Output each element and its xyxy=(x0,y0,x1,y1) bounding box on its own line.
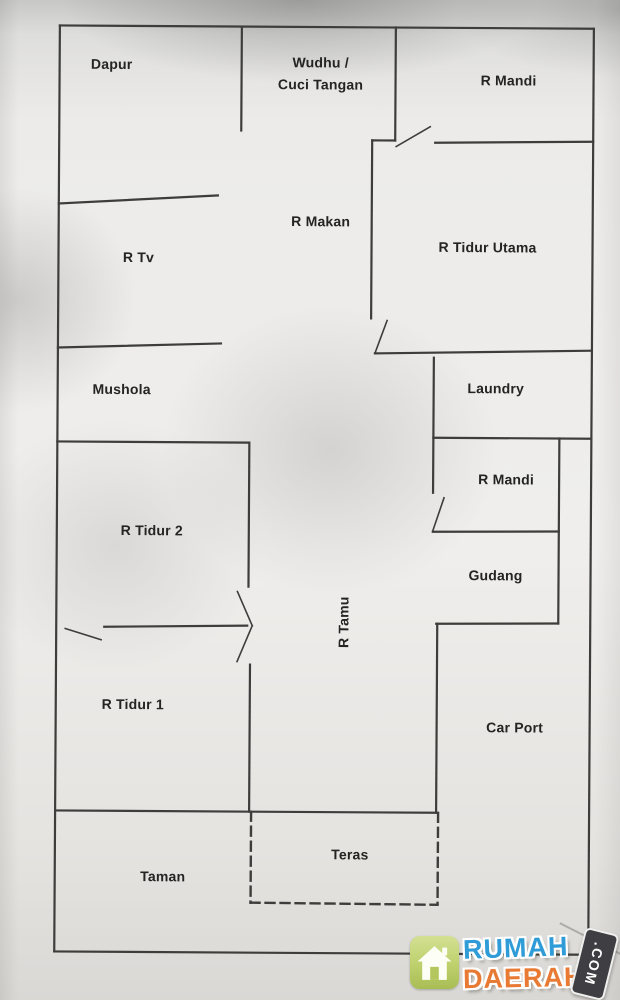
room-label-taman: Taman xyxy=(140,866,185,888)
room-label-gudang: Gudang xyxy=(468,565,522,587)
watermark-logo: RUMAH DAERAH .COM xyxy=(403,924,620,1000)
door-leaf xyxy=(375,320,387,353)
teras-dashed-wall xyxy=(251,903,438,905)
door-leaf xyxy=(237,592,252,626)
room-label-teras: Teras xyxy=(331,844,368,866)
door-leaf xyxy=(65,629,101,640)
watermark-word-daerah: DAERAH xyxy=(463,964,585,994)
teras-dashed-wall xyxy=(438,813,439,904)
door-leaf xyxy=(433,498,444,531)
room-label-dapur: Dapur xyxy=(91,54,133,76)
watermark-word-rumah: RUMAH xyxy=(463,933,569,964)
room-label-r-mandi-atas: R Mandi xyxy=(481,70,537,92)
wall xyxy=(435,141,593,144)
room-label-r-tamu: R Tamu xyxy=(333,596,355,648)
room-label-wudhu-cuci-tangan: Wudhu / Cuci Tangan xyxy=(278,52,363,96)
wall xyxy=(57,441,248,442)
floor-plan: DapurWudhu / Cuci TanganR MandiR MakanR … xyxy=(0,0,620,1000)
wall xyxy=(433,531,559,533)
wall xyxy=(433,438,591,439)
door-leaf xyxy=(237,626,252,662)
wall xyxy=(249,665,250,812)
wall xyxy=(55,810,436,812)
wall xyxy=(433,358,434,493)
house-icon xyxy=(410,936,459,989)
wall xyxy=(371,140,372,318)
room-label-r-makan: R Makan xyxy=(291,211,350,233)
door-leaf xyxy=(396,127,430,147)
room-label-car-port: Car Port xyxy=(486,717,543,739)
room-label-r-tv: R Tv xyxy=(123,247,154,269)
wall xyxy=(375,349,592,354)
room-label-r-mandi-bawah: R Mandi xyxy=(478,469,534,491)
watermark-tld: .COM xyxy=(581,940,607,987)
wall xyxy=(248,443,249,587)
room-label-r-tidur-2: R Tidur 2 xyxy=(121,520,183,542)
wall xyxy=(60,25,594,28)
wall xyxy=(241,27,242,131)
teras-dashed-wall xyxy=(251,812,252,903)
room-label-laundry: Laundry xyxy=(467,378,524,400)
wall xyxy=(58,342,221,348)
room-label-r-tidur-1: R Tidur 1 xyxy=(102,694,164,716)
wall xyxy=(436,624,437,813)
room-label-mushola: Mushola xyxy=(93,379,151,401)
wall xyxy=(104,625,247,628)
watermark-com-tag: .COM xyxy=(569,927,619,1000)
floor-plan-photo: DapurWudhu / Cuci TanganR MandiR MakanR … xyxy=(0,0,620,1000)
floor-plan-walls-svg xyxy=(0,0,620,1000)
wall xyxy=(54,25,60,951)
room-label-r-tidur-utama: R Tidur Utama xyxy=(438,237,536,259)
wall xyxy=(395,28,396,141)
wall xyxy=(59,194,218,204)
wall xyxy=(436,623,558,625)
wall xyxy=(588,29,594,955)
